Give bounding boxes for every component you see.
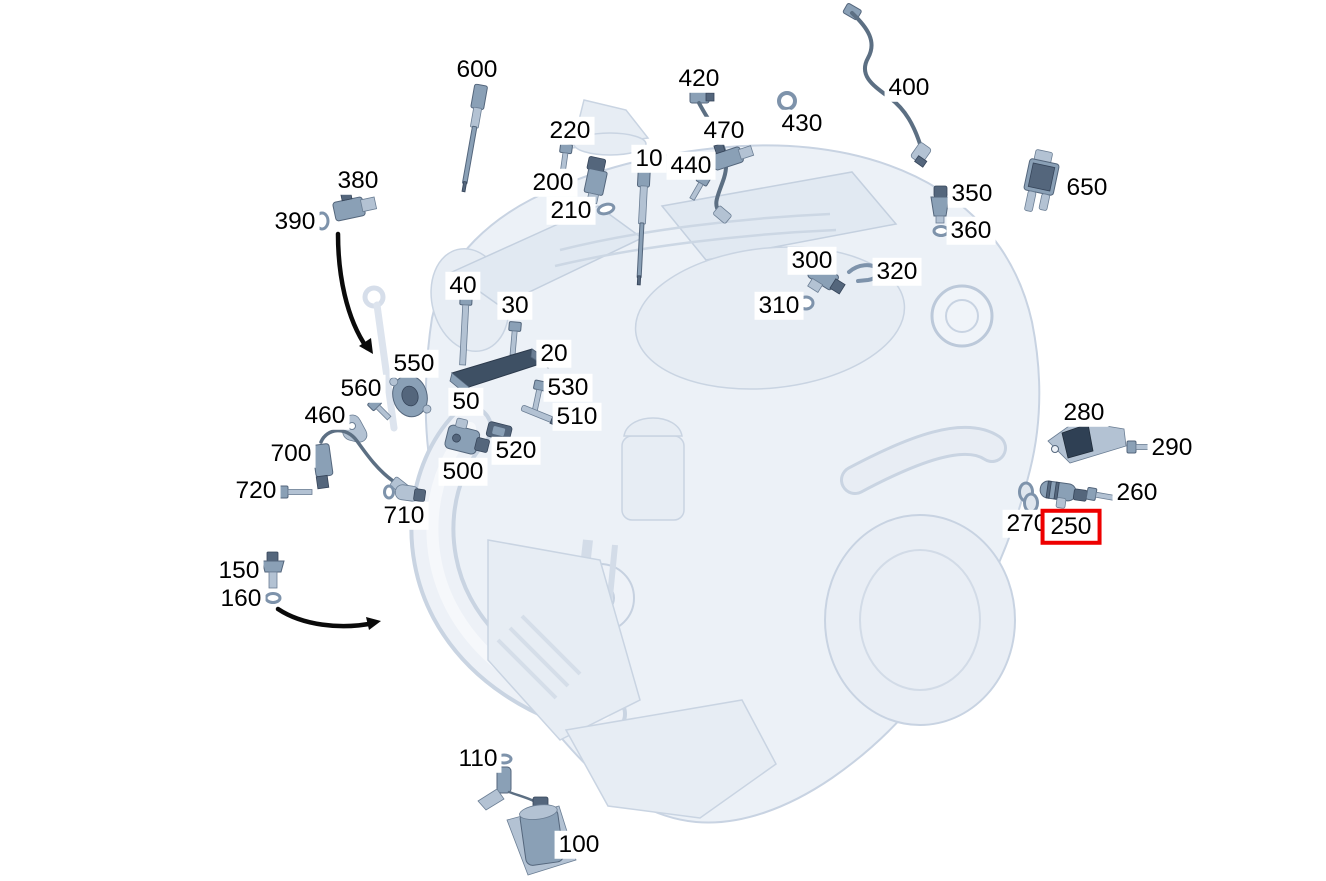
callout-250-selected[interactable]: 250 bbox=[1041, 509, 1102, 545]
callout-440[interactable]: 440 bbox=[667, 152, 716, 180]
callout-360[interactable]: 360 bbox=[947, 217, 996, 245]
callout-600[interactable]: 600 bbox=[453, 56, 502, 84]
callout-390[interactable]: 390 bbox=[271, 208, 320, 236]
callout-290[interactable]: 290 bbox=[1148, 434, 1197, 462]
callout-110[interactable]: 110 bbox=[454, 745, 501, 773]
callout-150[interactable]: 150 bbox=[215, 557, 264, 585]
callout-310[interactable]: 310 bbox=[755, 292, 804, 320]
callout-300[interactable]: 300 bbox=[788, 247, 837, 275]
callout-710[interactable]: 710 bbox=[380, 502, 429, 530]
callout-530[interactable]: 530 bbox=[544, 374, 593, 402]
callout-320[interactable]: 320 bbox=[873, 258, 922, 286]
callout-20[interactable]: 20 bbox=[536, 340, 571, 368]
callout-500[interactable]: 500 bbox=[439, 458, 488, 486]
callout-520[interactable]: 520 bbox=[492, 437, 541, 465]
callout-220[interactable]: 220 bbox=[546, 117, 595, 145]
callout-560[interactable]: 560 bbox=[337, 375, 386, 403]
callout-700[interactable]: 700 bbox=[267, 440, 316, 468]
callout-layer: 6004204004304702201044020065035021038039… bbox=[0, 0, 1326, 881]
callout-210[interactable]: 210 bbox=[547, 197, 596, 225]
callout-30[interactable]: 30 bbox=[497, 292, 532, 320]
callout-430[interactable]: 430 bbox=[778, 110, 827, 138]
callout-550[interactable]: 550 bbox=[390, 350, 439, 378]
callout-420[interactable]: 420 bbox=[675, 65, 724, 93]
callout-260[interactable]: 260 bbox=[1113, 479, 1162, 507]
callout-400[interactable]: 400 bbox=[885, 74, 934, 102]
callout-200[interactable]: 200 bbox=[529, 169, 578, 197]
callout-10[interactable]: 10 bbox=[631, 145, 666, 173]
callout-350[interactable]: 350 bbox=[948, 180, 997, 208]
callout-380[interactable]: 380 bbox=[334, 167, 383, 195]
callout-720[interactable]: 720 bbox=[232, 477, 281, 505]
diagram-canvas: 6004204004304702201044020065035021038039… bbox=[0, 0, 1326, 881]
callout-100[interactable]: 100 bbox=[555, 831, 604, 859]
callout-40[interactable]: 40 bbox=[445, 272, 480, 300]
callout-50[interactable]: 50 bbox=[448, 388, 483, 416]
callout-510[interactable]: 510 bbox=[553, 403, 602, 431]
callout-160[interactable]: 160 bbox=[217, 585, 266, 613]
callout-650[interactable]: 650 bbox=[1063, 174, 1112, 202]
callout-460[interactable]: 460 bbox=[301, 402, 350, 430]
callout-470[interactable]: 470 bbox=[700, 117, 749, 145]
callout-280[interactable]: 280 bbox=[1060, 399, 1109, 427]
